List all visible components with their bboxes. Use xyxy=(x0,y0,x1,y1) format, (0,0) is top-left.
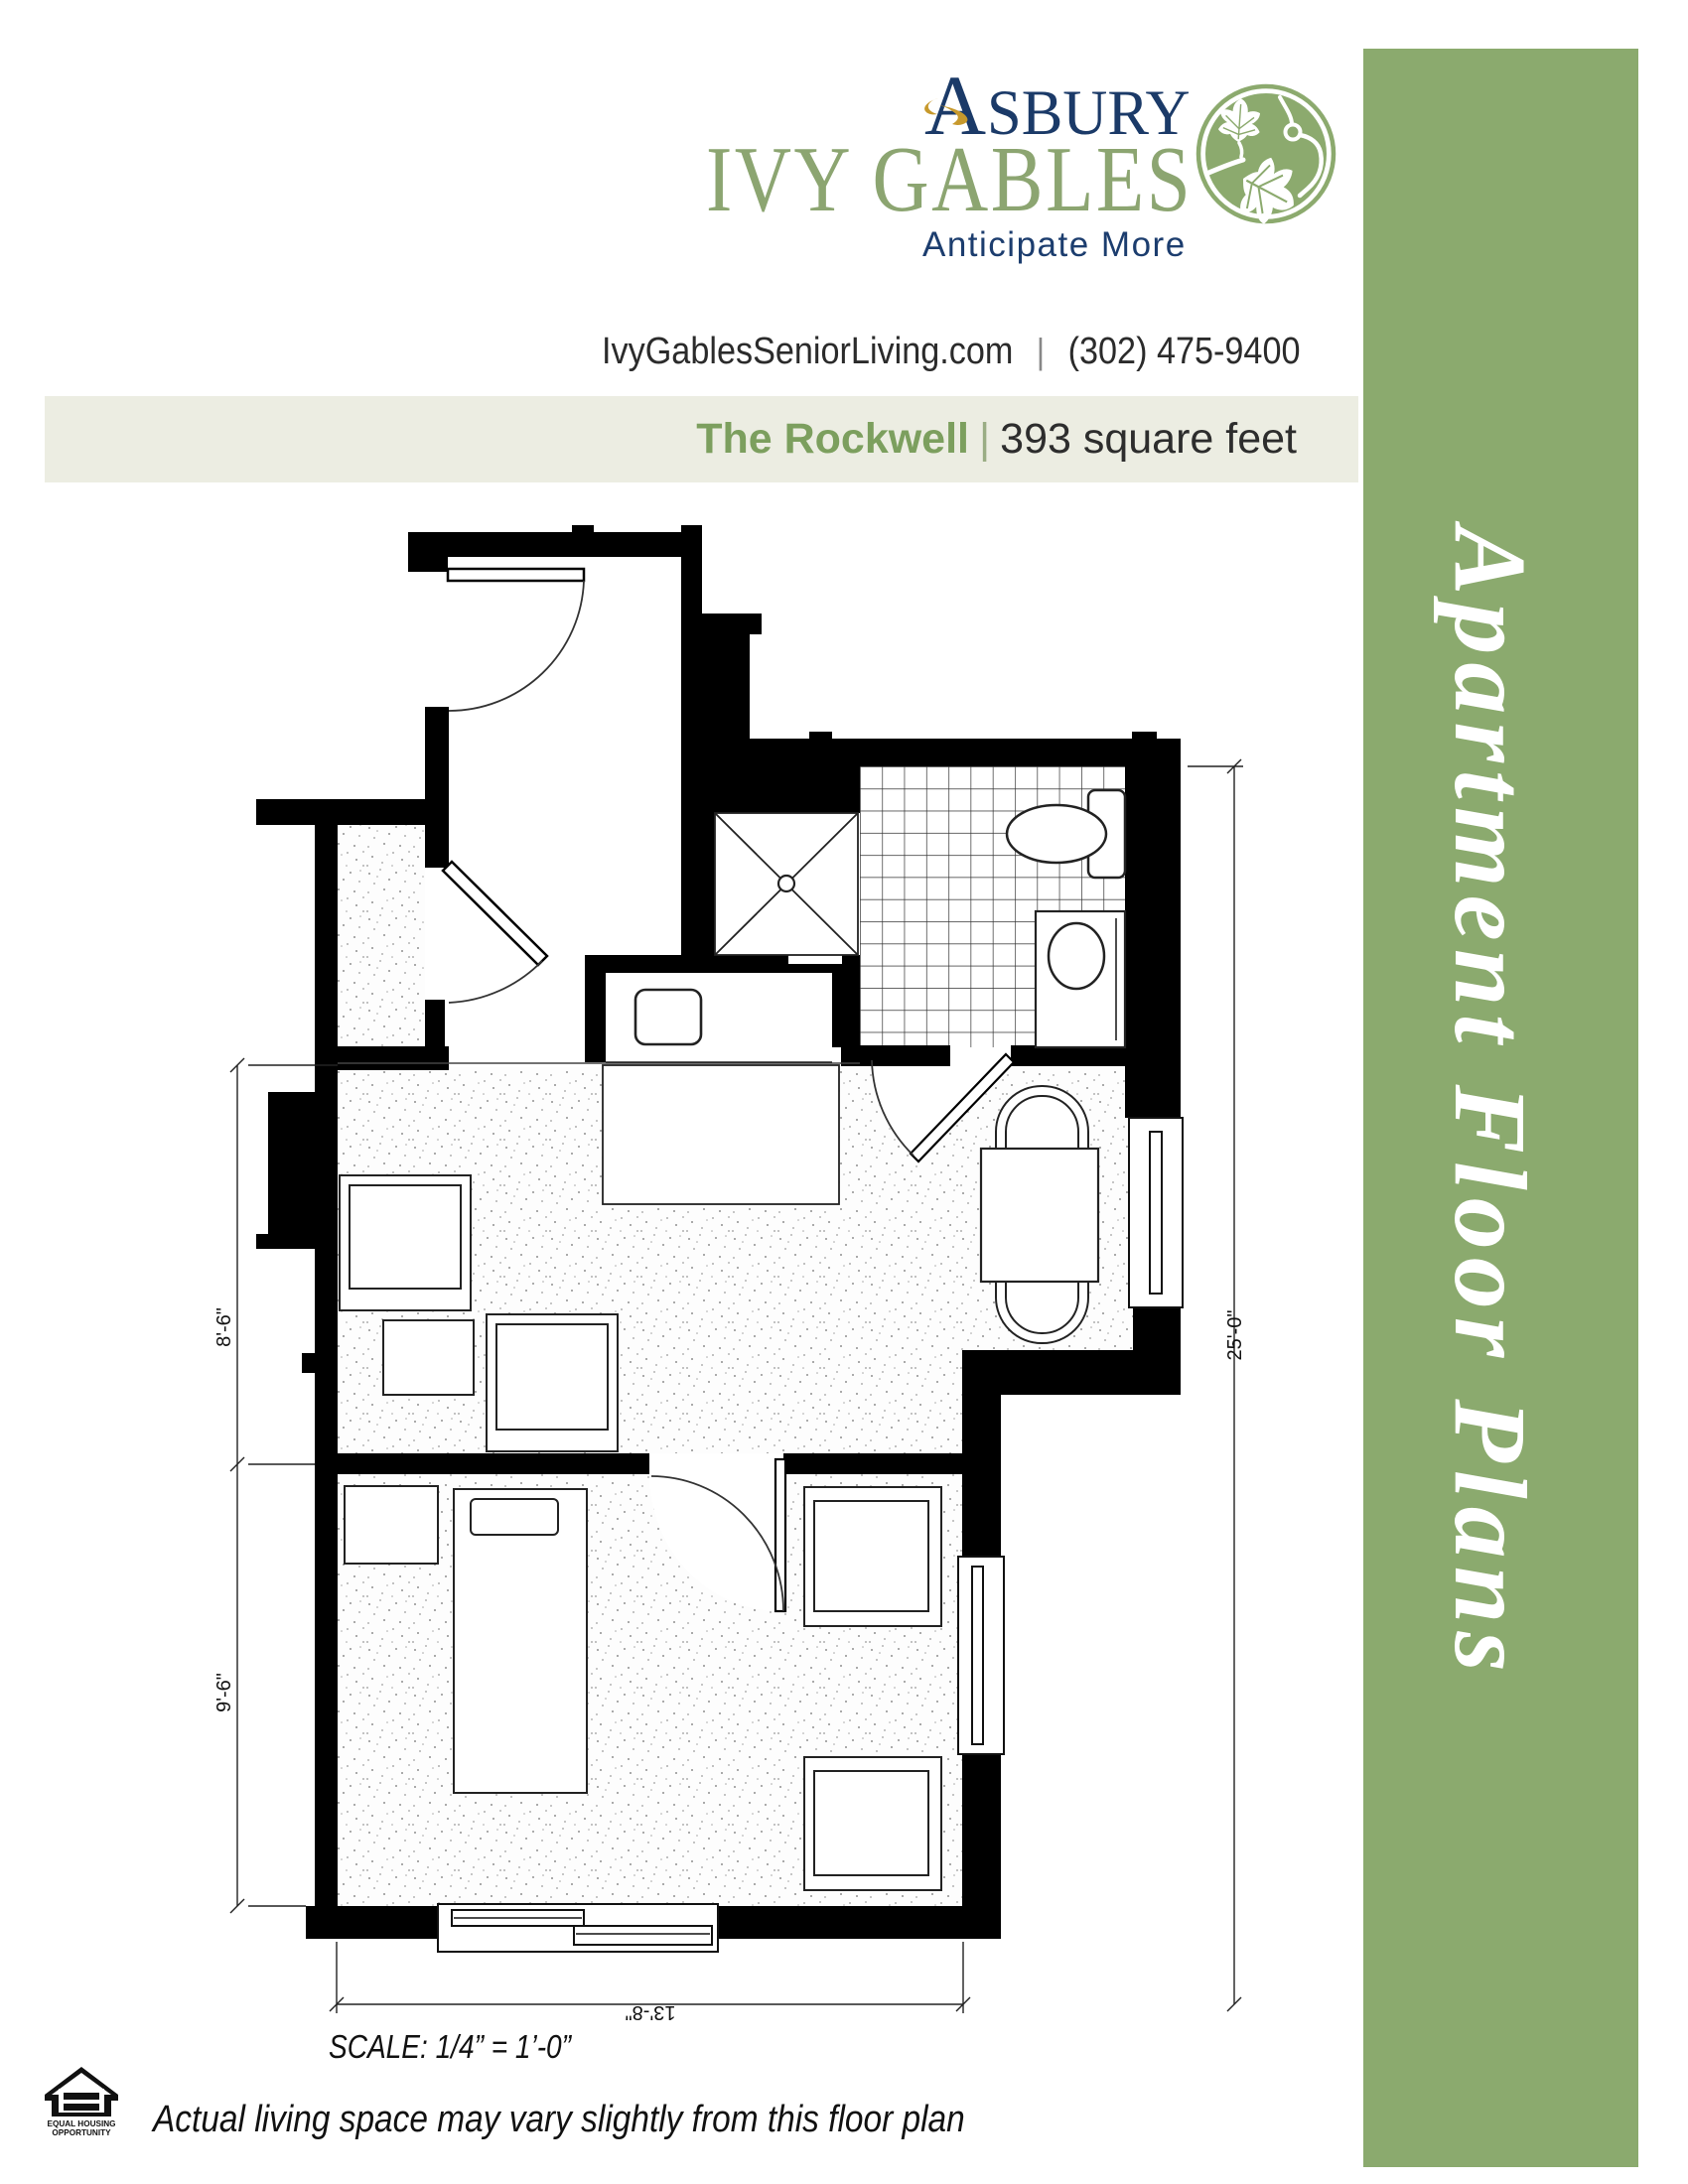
svg-text:25'-0": 25'-0" xyxy=(1224,1310,1246,1361)
svg-text:8'-6": 8'-6" xyxy=(213,1307,235,1347)
svg-text:13'-8": 13'-8" xyxy=(626,2001,676,2023)
svg-text:9'-6": 9'-6" xyxy=(213,1673,235,1712)
